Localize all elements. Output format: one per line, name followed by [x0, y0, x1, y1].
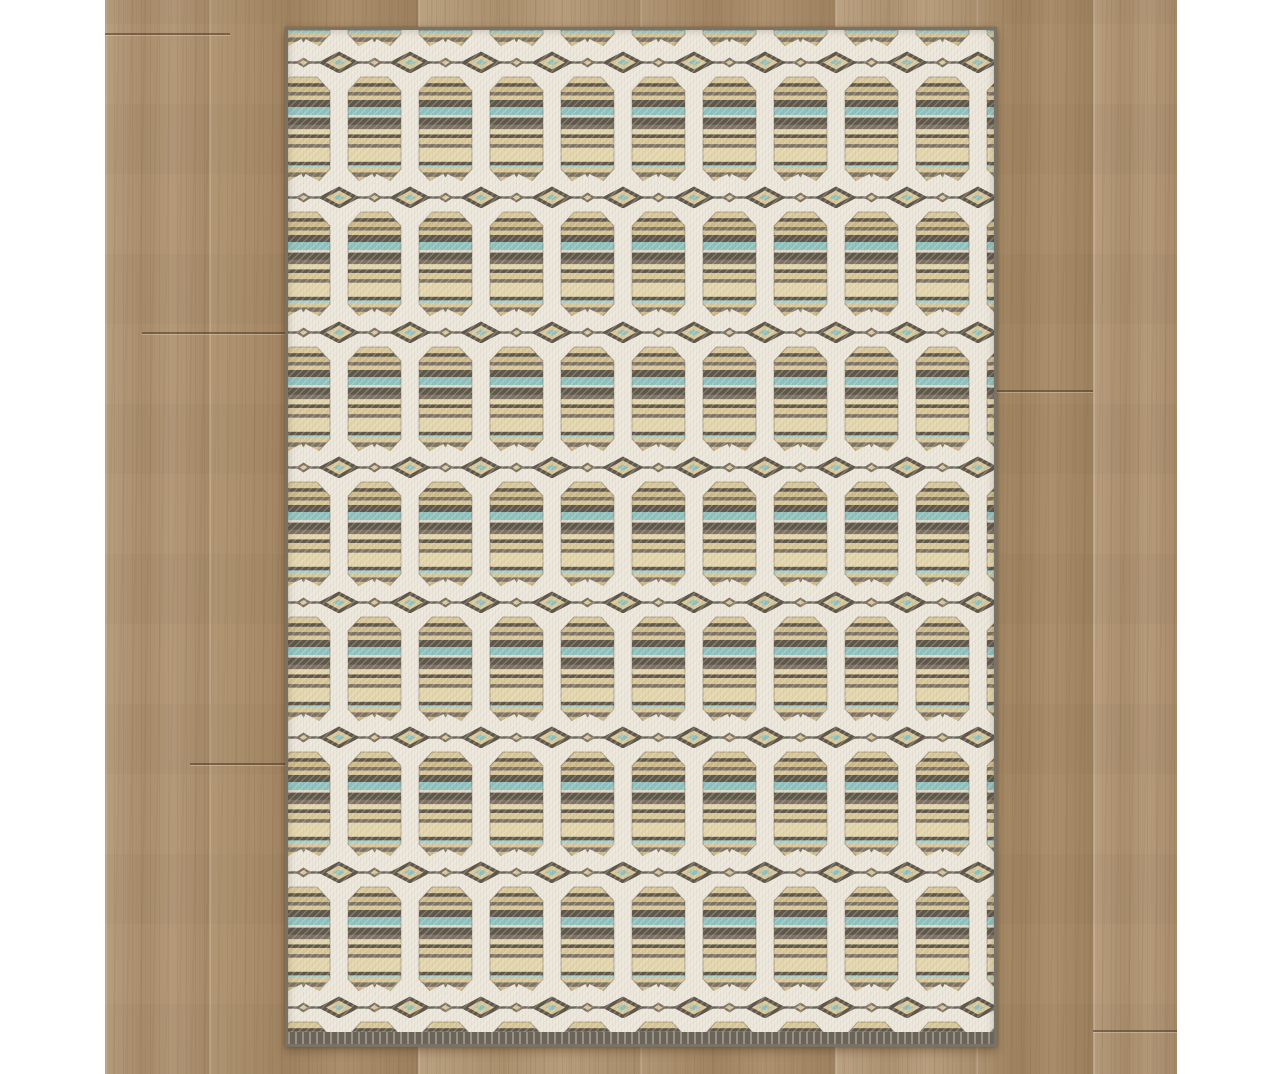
plank-end-joint	[997, 390, 1093, 392]
product-photo	[0, 0, 1280, 1074]
area-rug	[285, 27, 997, 1047]
plank-end-joint	[1093, 1030, 1177, 1032]
plank-grain	[105, 0, 209, 1074]
plank-grain	[1093, 0, 1177, 1074]
plank-end-joint	[105, 33, 230, 35]
rug-weave-pattern	[288, 30, 994, 1044]
plank-end-joint	[190, 763, 290, 765]
floor-plank	[105, 0, 211, 1074]
floor-plank	[1093, 0, 1177, 1074]
